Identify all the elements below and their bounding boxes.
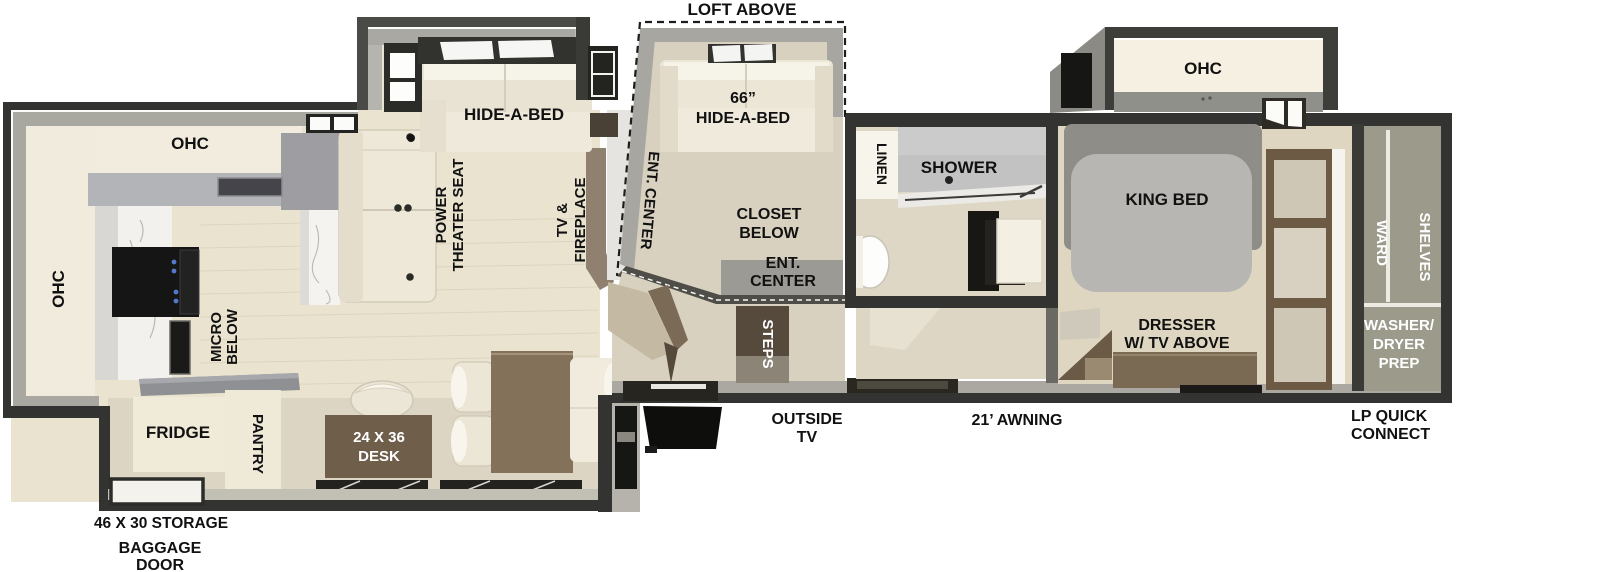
svg-text:ENT.: ENT. bbox=[766, 255, 801, 272]
svg-text:BELOW: BELOW bbox=[739, 225, 799, 242]
svg-text:LOFT ABOVE: LOFT ABOVE bbox=[688, 0, 797, 19]
svg-text:FIREPLACE: FIREPLACE bbox=[572, 177, 589, 262]
svg-text:KING BED: KING BED bbox=[1125, 190, 1208, 209]
svg-text:CLOSET: CLOSET bbox=[737, 206, 802, 223]
svg-text:PREP: PREP bbox=[1379, 355, 1420, 372]
svg-text:TV: TV bbox=[797, 429, 818, 446]
svg-text:THEATER SEAT: THEATER SEAT bbox=[450, 159, 467, 272]
svg-text:OHC: OHC bbox=[171, 134, 209, 153]
svg-text:OHC: OHC bbox=[49, 270, 68, 308]
svg-text:SHOWER: SHOWER bbox=[921, 158, 998, 177]
svg-text:CONNECT: CONNECT bbox=[1351, 426, 1430, 443]
svg-text:FRIDGE: FRIDGE bbox=[146, 423, 210, 442]
svg-text:WASHER/: WASHER/ bbox=[1364, 317, 1435, 334]
svg-text:DOOR: DOOR bbox=[136, 557, 184, 572]
svg-text:21’ AWNING: 21’ AWNING bbox=[972, 412, 1063, 429]
svg-text:MICRO: MICRO bbox=[208, 312, 225, 362]
svg-text:DESK: DESK bbox=[358, 448, 400, 465]
svg-text:OHC: OHC bbox=[1184, 59, 1222, 78]
svg-text:46 X 30 STORAGE: 46 X 30 STORAGE bbox=[94, 515, 228, 532]
svg-text:DRESSER: DRESSER bbox=[1138, 317, 1216, 334]
svg-text:LINEN: LINEN bbox=[874, 143, 890, 185]
svg-text:DRYER: DRYER bbox=[1373, 336, 1425, 353]
svg-text:WARD: WARD bbox=[1373, 220, 1390, 266]
svg-text:HIDE-A-BED: HIDE-A-BED bbox=[464, 105, 564, 124]
svg-text:66”: 66” bbox=[730, 90, 756, 107]
svg-text:BAGGAGE: BAGGAGE bbox=[119, 540, 202, 557]
svg-text:POWER: POWER bbox=[433, 187, 450, 244]
svg-text:BELOW: BELOW bbox=[224, 308, 241, 365]
svg-text:HIDE-A-BED: HIDE-A-BED bbox=[696, 110, 790, 127]
svg-text:SHELVES: SHELVES bbox=[1416, 213, 1433, 282]
svg-text:OUTSIDE: OUTSIDE bbox=[771, 411, 842, 428]
svg-text:LP QUICK: LP QUICK bbox=[1351, 408, 1428, 425]
svg-text:CENTER: CENTER bbox=[750, 273, 816, 290]
svg-text:W/ TV ABOVE: W/ TV ABOVE bbox=[1124, 335, 1230, 352]
svg-text:PANTRY: PANTRY bbox=[249, 414, 266, 474]
svg-text:TV &: TV & bbox=[554, 203, 571, 237]
svg-text:24 X 36: 24 X 36 bbox=[353, 429, 405, 446]
svg-text:STEPS: STEPS bbox=[759, 319, 776, 368]
